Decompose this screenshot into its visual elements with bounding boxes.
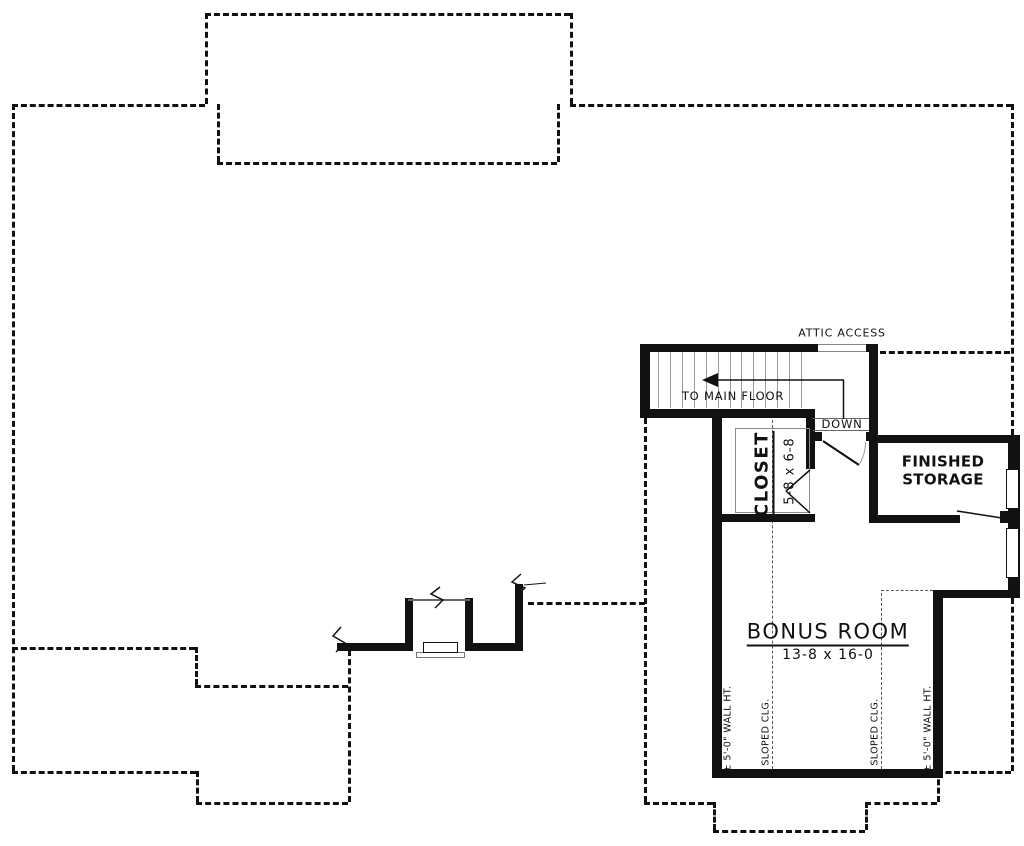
- roofline-left: [12, 104, 15, 771]
- roofline-bonus-left: [644, 418, 647, 802]
- roofline-gable-left: [205, 13, 208, 104]
- wallline-bottom-left-step-inner: [195, 647, 198, 685]
- bonus-bottom-wall: [712, 769, 943, 778]
- landing-right-wall: [869, 344, 878, 523]
- wall-height-label-left: ± 5'-0" WALL HT.: [723, 686, 734, 773]
- roofline-gable-right: [570, 13, 573, 104]
- storage-window-upper: [1006, 469, 1019, 509]
- wall-height-label-right: ± 5'-0" WALL HT.: [923, 686, 934, 773]
- ceiling-break-line: [881, 590, 933, 591]
- roofline-right-upper: [1011, 104, 1014, 435]
- storage-top-wall: [878, 435, 1020, 443]
- bonus-room-label: BONUS ROOM: [747, 620, 909, 647]
- attic-access-label: ATTIC ACCESS: [798, 327, 886, 340]
- dormer-right-wall: [465, 598, 473, 651]
- stair-left-wall: [640, 344, 650, 418]
- wallline-gable-step-left: [217, 104, 220, 162]
- closet-dimensions-label: 5-8 x 6-8: [783, 437, 798, 504]
- bonus-left-wall: [712, 409, 722, 778]
- sloped-ceiling-label-left: SLOPED CLG.: [761, 698, 772, 765]
- roofline-top-left: [12, 104, 205, 107]
- roofline-bottom-right: [937, 771, 1011, 774]
- stair-tread-line: [658, 352, 659, 408]
- roofline-bonus-bottom-3: [865, 802, 937, 805]
- storage-door-stop: [1000, 511, 1008, 523]
- dormer-window: [423, 642, 458, 653]
- wall-break-mark-dormer: [431, 587, 443, 608]
- wallline-dormer-right: [528, 602, 645, 605]
- wallline-gable-bottom: [217, 162, 557, 165]
- stair-tread-line: [801, 352, 802, 408]
- stair-tread-line: [789, 352, 790, 408]
- down-label: DOWN: [821, 417, 862, 431]
- floor-plan-canvas: ATTIC ACCESS TO MAIN FLOOR DOWN CLOSET 5…: [0, 0, 1024, 846]
- roofline-right-lower: [1011, 598, 1014, 771]
- stub-wall: [515, 584, 523, 651]
- wallline-bottom-left-inner: [12, 647, 195, 650]
- stair-bottom-wall: [640, 409, 813, 418]
- dormer-left-wall: [405, 598, 413, 651]
- roofline-bonus-bottom-1: [644, 802, 713, 805]
- roofline-bottom-left-step-outer: [196, 771, 199, 802]
- roofline-mid-vertical: [348, 650, 351, 802]
- dormer-top-line: [408, 599, 470, 601]
- roofline-bottom-outer: [196, 802, 348, 805]
- storage-window-lower: [1006, 528, 1019, 578]
- roofline-top-right: [570, 104, 1012, 107]
- dormer-bottom-wall-left: [337, 643, 408, 651]
- storage-bottom-wall: [869, 515, 960, 523]
- wallline-gable-step-right: [557, 104, 560, 162]
- finished-storage-label: FINISHED STORAGE: [901, 453, 985, 488]
- roofline-bonus-bottom-2: [713, 830, 865, 833]
- roofline-bonus-step-left: [713, 802, 716, 830]
- sloped-ceiling-label-right: SLOPED CLG.: [870, 698, 881, 765]
- roofline-bonus-step-right: [865, 802, 868, 830]
- wallline-bottom-inner: [195, 685, 348, 688]
- hall-door: [823, 441, 866, 465]
- bonus-right-wall: [933, 590, 943, 778]
- storage-door: [957, 511, 1002, 518]
- stair-top-wall: [640, 344, 818, 352]
- stair-tread-line: [670, 352, 671, 408]
- bonus-top-right-wall: [933, 590, 1020, 598]
- bonus-room-dimensions-label: 13-8 x 16-0: [782, 647, 874, 663]
- roofline-bottom-left-outer: [12, 771, 196, 774]
- attic-access-opening: [818, 344, 866, 352]
- to-main-floor-label: TO MAIN FLOOR: [682, 389, 784, 403]
- roofline-stair-right: [880, 351, 1010, 354]
- stub-break-tail: [524, 583, 546, 585]
- roofline-gable-top: [205, 13, 570, 16]
- closet-room-label: CLOSET: [752, 431, 775, 517]
